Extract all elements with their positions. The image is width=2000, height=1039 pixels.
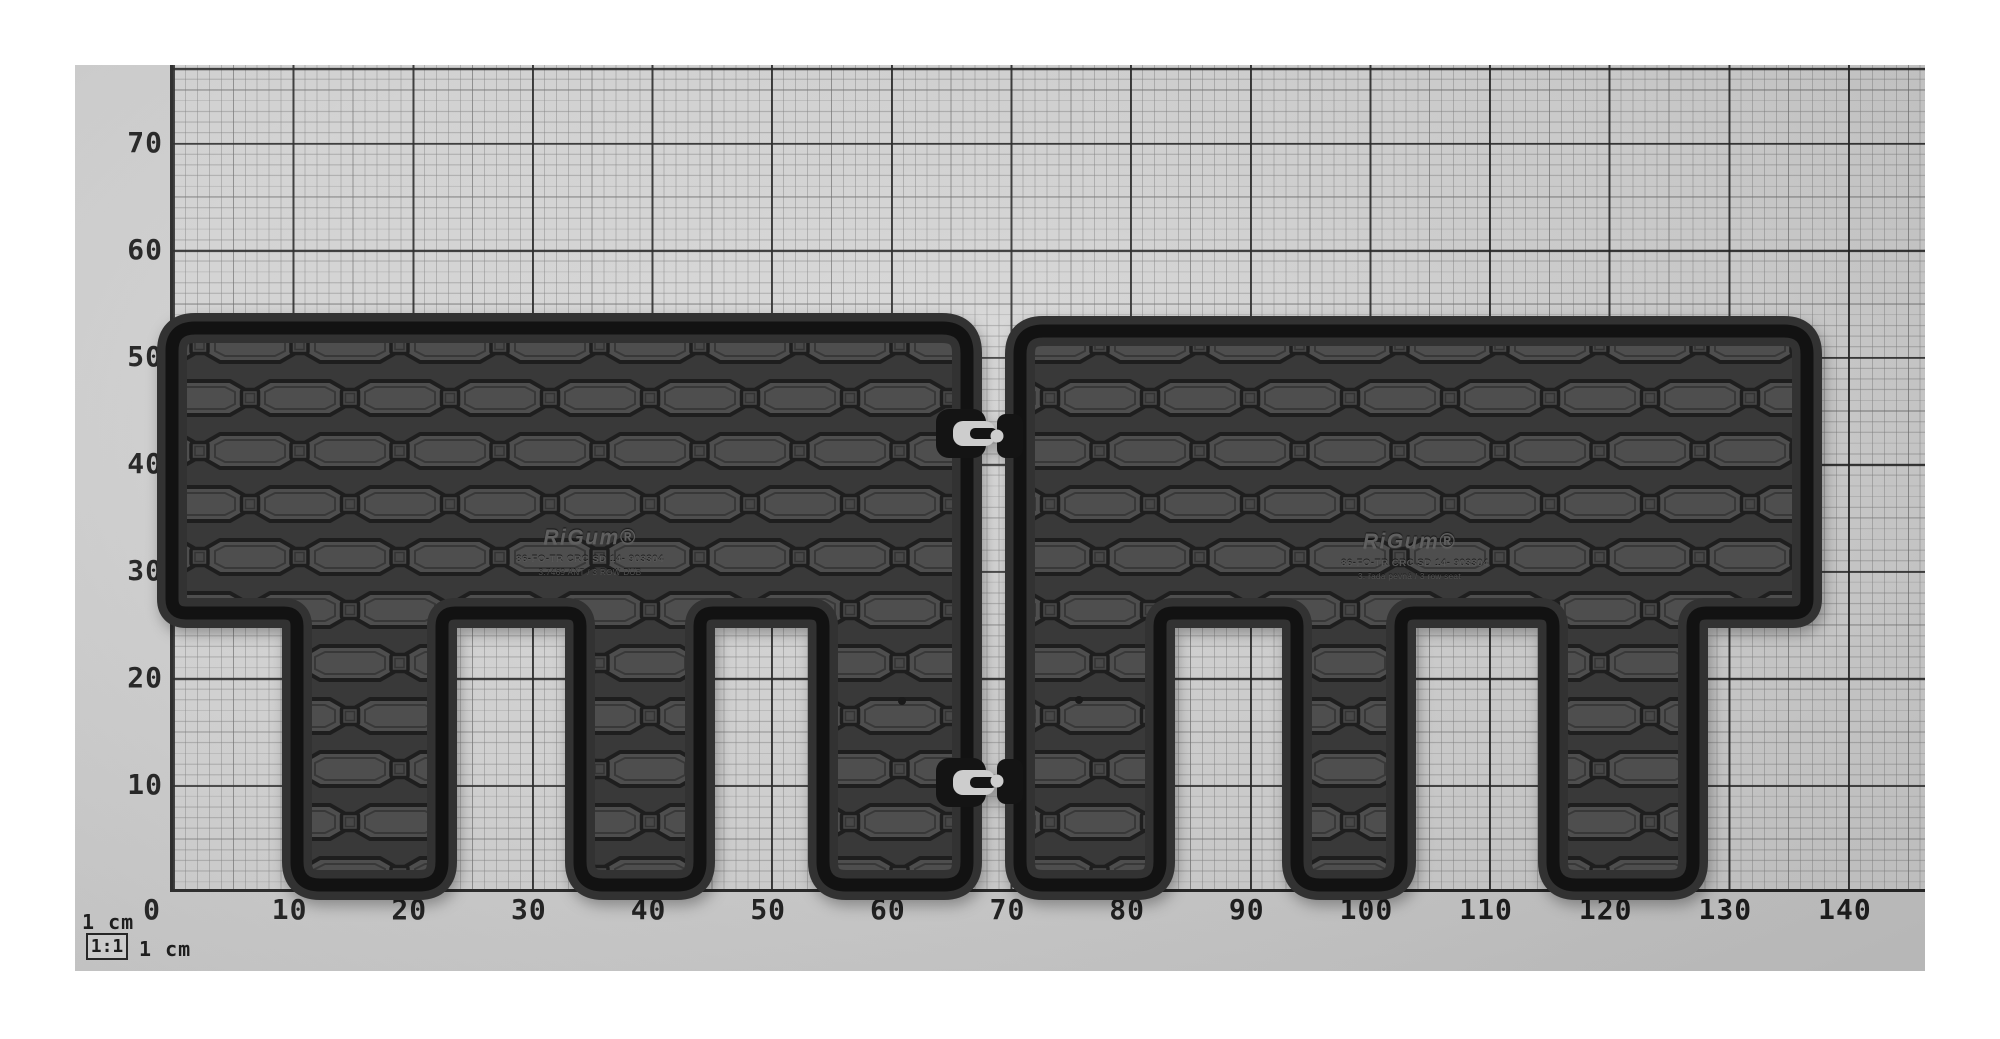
right-mat	[1020, 331, 1807, 885]
right-mat-tab-top	[991, 414, 1024, 458]
left-mat	[172, 328, 967, 885]
left-mat-hook-top	[936, 409, 997, 458]
vent-hole	[898, 697, 906, 705]
product-photo-stage: 0102030405060708090100110120130140 70605…	[0, 0, 2000, 1039]
right-mat-tab-bottom	[991, 759, 1024, 804]
vent-hole	[1075, 696, 1083, 704]
left-mat-hook-bottom	[936, 758, 997, 807]
rubber-mats-graphic	[0, 0, 2000, 1039]
